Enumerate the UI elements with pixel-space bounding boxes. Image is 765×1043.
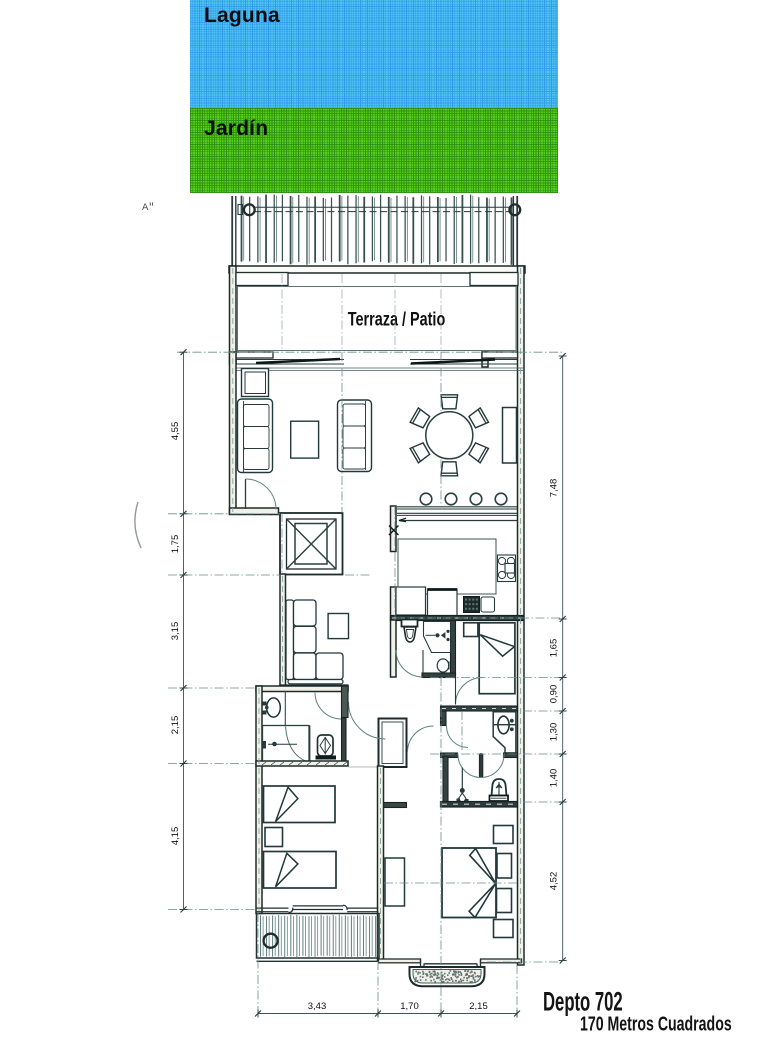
svg-text:7,48: 7,48	[549, 479, 560, 498]
svg-text:170 Metros Cuadrados: 170 Metros Cuadrados	[580, 1012, 732, 1035]
svg-text:3,15: 3,15	[170, 622, 181, 641]
svg-text:0,90: 0,90	[549, 685, 560, 704]
svg-text:1,65: 1,65	[549, 639, 560, 658]
svg-text:1,75: 1,75	[170, 535, 181, 554]
svg-text:2,15: 2,15	[469, 1001, 488, 1012]
svg-text:2,15: 2,15	[170, 716, 181, 735]
svg-text:A": A"	[142, 202, 155, 214]
svg-text:4,55: 4,55	[170, 422, 181, 441]
svg-text:Terraza / Patio: Terraza / Patio	[348, 307, 446, 330]
svg-text:1,40: 1,40	[549, 769, 560, 788]
svg-text:3,43: 3,43	[308, 1001, 327, 1012]
svg-text:4,15: 4,15	[170, 827, 181, 846]
svg-text:1,70: 1,70	[400, 1001, 419, 1012]
svg-text:4,52: 4,52	[549, 872, 560, 891]
svg-text:1,30: 1,30	[549, 723, 560, 742]
